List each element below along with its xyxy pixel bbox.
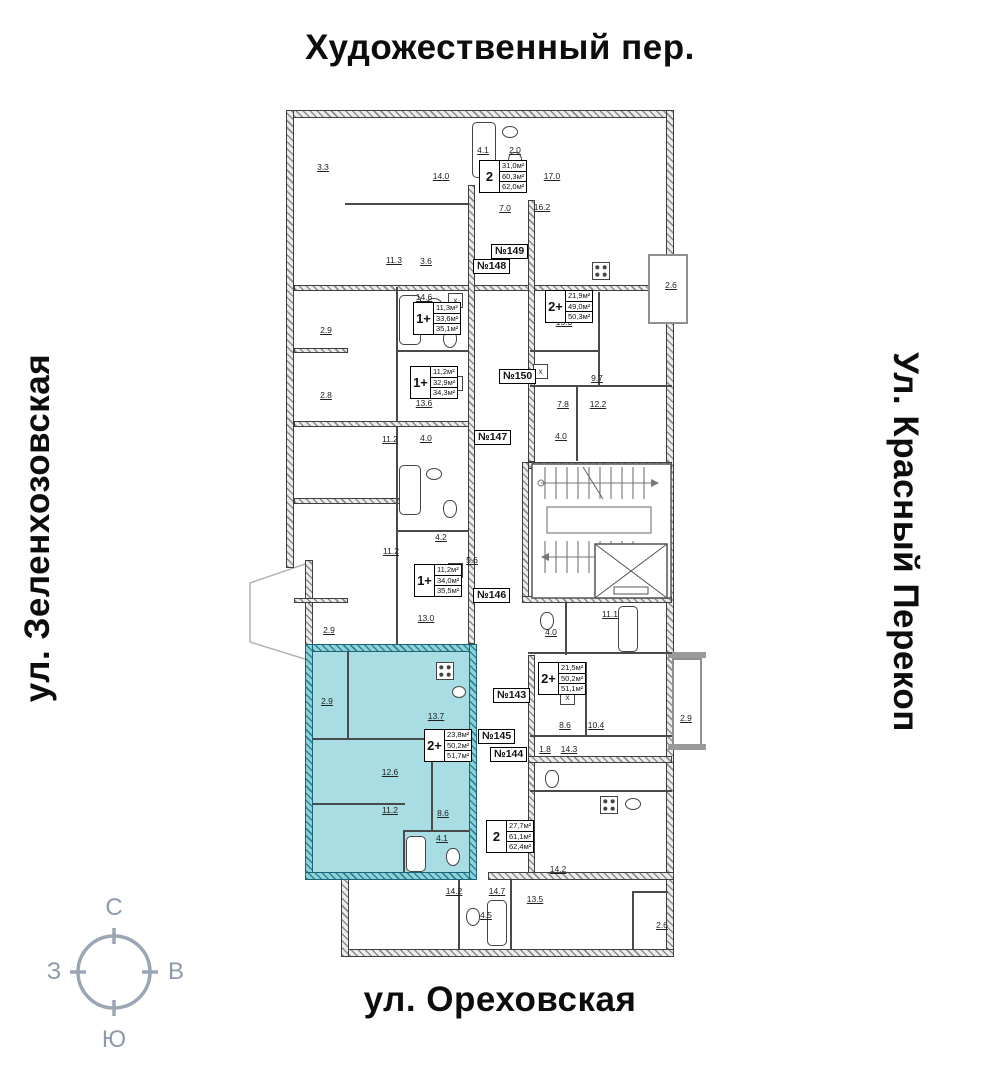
partition-wall [403, 830, 469, 832]
partition-wall [347, 652, 349, 740]
unit-type-label: 2 [480, 161, 500, 192]
unit-areas: 11,2м²32,9м²34,3м² [431, 367, 457, 398]
sink-icon [502, 126, 518, 138]
unit-areas: 31,0м²60,3м²62,0м² [500, 161, 526, 192]
unit-number-tag: №150 [499, 369, 536, 384]
unit-areas: 11,2м²34,0м²35,5м² [435, 565, 461, 596]
tub-icon [487, 900, 507, 946]
room-dimension-label: 2.6 [665, 280, 677, 290]
unit-number-tag: №144 [490, 747, 527, 762]
partition-wall [313, 738, 433, 740]
unit-number-tag: №145 [478, 729, 515, 744]
unit-stat-box[interactable]: 1+11,3м²33,6м²35,1м² [413, 302, 461, 335]
unit-area-value: 11,2м² [431, 367, 457, 377]
unit-stat-box[interactable]: 1+11,2м²34,0м²35,5м² [414, 564, 462, 597]
unit-stat-box[interactable]: 1+11,2м²32,9м²34,3м² [410, 366, 458, 399]
room-dimension-label: 3.3 [317, 162, 329, 172]
room-dimension-label: 11.2 [382, 805, 398, 815]
room-dimension-label: 4.0 [545, 627, 557, 637]
stove-icon [592, 262, 610, 280]
room-dimension-label: 4.1 [477, 145, 489, 155]
partition-wall [510, 880, 512, 949]
unit-areas: 11,3м²33,6м²35,1м² [434, 303, 460, 334]
tub-icon [399, 465, 421, 515]
room-dimension-label: 12.2 [590, 399, 607, 409]
unit-type-label: 2+ [546, 291, 566, 322]
toilet-icon [446, 848, 460, 866]
room-dimension-label: 2.9 [320, 325, 332, 335]
wall-segment [522, 462, 529, 603]
room-dimension-label: 13.6 [416, 398, 433, 408]
unit-area-value: 51,7м² [445, 751, 471, 761]
toilet-icon [545, 770, 559, 788]
tub-icon [406, 836, 426, 872]
unit-stat-box[interactable]: 227,7м²61,1м²62,4м² [486, 820, 534, 853]
room-dimension-label: 13.5 [527, 894, 544, 904]
unit-area-value: 49,0м² [566, 301, 592, 313]
room-dimension-label: 14.2 [446, 886, 463, 896]
unit-areas: 21,5м²50,2м²51,1м² [559, 663, 585, 694]
unit-type-label: 2+ [425, 730, 445, 761]
room-dimension-label: 9.7 [591, 373, 603, 383]
unit-number-tag: №146 [473, 588, 510, 603]
room-dimension-label: 14.6 [416, 292, 433, 302]
unit-stat-box[interactable]: 2+21,9м²49,0м²50,3м² [545, 290, 593, 323]
wall-segment [294, 348, 348, 353]
room-dimension-label: 11.2 [383, 546, 399, 556]
balcony-slab [668, 652, 706, 658]
room-dimension-label: 8.6 [559, 720, 571, 730]
wall-segment [305, 560, 313, 652]
partition-wall [530, 735, 672, 737]
unit-areas: 27,7м²61,1м²62,4м² [507, 821, 533, 852]
partition-wall [632, 891, 668, 893]
partition-wall [565, 603, 567, 655]
unit-area-value: 35,5м² [435, 586, 461, 596]
unit-stat-box-highlighted[interactable]: 2+23,8м²50,2м²51,7м² [424, 729, 472, 762]
room-dimension-label: 14.0 [433, 171, 450, 181]
room-dimension-label: 4.0 [420, 433, 432, 443]
unit-area-value: 11,3м² [434, 303, 460, 313]
balcony-outline [672, 658, 702, 748]
partition-wall [598, 292, 600, 385]
room-dimension-label: 14.2 [550, 864, 567, 874]
wall-segment [294, 598, 348, 603]
room-dimension-label: 14.3 [561, 744, 578, 754]
room-dimension-label: 10.4 [588, 720, 605, 730]
unit-area-value: 50,2м² [445, 740, 471, 752]
room-dimension-label: 2.8 [320, 390, 332, 400]
unit-type-label: 2 [487, 821, 507, 852]
tub-icon [618, 606, 638, 652]
highlight-wall-segment [469, 644, 477, 880]
room-dimension-label: 1.8 [539, 744, 551, 754]
wall-segment [488, 872, 674, 880]
unit-area-value: 51,1м² [559, 684, 585, 694]
room-dimension-label: 14.7 [489, 886, 506, 896]
room-dimension-label: 17.0 [544, 171, 561, 181]
sink-icon [625, 798, 641, 810]
unit-area-value: 50,3м² [566, 312, 592, 322]
partition-wall [528, 652, 672, 654]
unit-type-label: 1+ [415, 565, 435, 596]
wall-segment [294, 421, 474, 427]
partition-wall [530, 350, 598, 352]
unit-type-label: 2+ [539, 663, 559, 694]
unit-type-label: 1+ [411, 367, 431, 398]
unit-area-value: 35,1м² [434, 324, 460, 334]
wall-segment [286, 110, 294, 568]
unit-area-value: 27,7м² [507, 821, 533, 831]
partition-wall [576, 385, 578, 461]
unit-number-tag: №149 [491, 244, 528, 259]
room-dimension-label: 2.9 [323, 625, 335, 635]
unit-area-value: 33,6м² [434, 313, 460, 325]
unit-area-value: 61,1м² [507, 831, 533, 843]
toilet-icon [466, 908, 480, 926]
floorplan-page: { "streets": { "top": "Художественный пе… [0, 0, 1000, 1067]
unit-stat-box[interactable]: 231,0м²60,3м²62,0м² [479, 160, 527, 193]
partition-wall [396, 427, 398, 644]
partition-wall [396, 350, 468, 352]
unit-area-value: 23,8м² [445, 730, 471, 740]
highlight-wall-segment [305, 872, 477, 880]
unit-area-value: 60,3м² [500, 171, 526, 183]
partition-wall [530, 790, 672, 792]
room-dimension-label: 4.2 [435, 532, 447, 542]
unit-number-tag: №148 [473, 259, 510, 274]
wall-segment [294, 285, 672, 291]
terrace-outline-icon [244, 558, 314, 668]
room-dimension-label: 4.0 [555, 431, 567, 441]
wall-segment [468, 185, 475, 644]
compass-rose: С Ю З В [42, 880, 192, 1055]
unit-area-value: 62,0м² [500, 182, 526, 192]
unit-area-value: 50,2м² [559, 673, 585, 685]
unit-area-value: 62,4м² [507, 842, 533, 852]
room-dimension-label: 7.0 [499, 203, 511, 213]
elevator-icon [592, 541, 670, 601]
unit-area-value: 21,5м² [559, 663, 585, 673]
unit-area-value: 21,9м² [566, 291, 592, 301]
partition-wall [403, 830, 405, 872]
unit-areas: 21,9м²49,0м²50,3м² [566, 291, 592, 322]
room-dimension-label: 8.6 [437, 808, 449, 818]
sink-icon [452, 686, 466, 698]
room-dimension-label: 16.2 [534, 202, 551, 212]
room-dimension-label: 2.6 [656, 920, 668, 930]
balcony-slab [668, 744, 706, 750]
unit-number-tag: №143 [493, 688, 530, 703]
room-dimension-label: 13.0 [418, 613, 435, 623]
room-dimension-label: 2.9 [680, 713, 692, 723]
room-dimension-label: 12.6 [382, 767, 399, 777]
sink-icon [426, 468, 442, 480]
room-dimension-label: 7.8 [557, 399, 569, 409]
highlight-wall-segment [305, 644, 477, 652]
partition-wall [530, 385, 672, 387]
partition-wall [396, 530, 468, 532]
unit-area-value: 11,2м² [435, 565, 461, 575]
unit-areas: 23,8м²50,2м²51,7м² [445, 730, 471, 761]
stove-icon [600, 796, 618, 814]
room-dimension-label: 2.9 [321, 696, 333, 706]
room-dimension-label: 11.1 [602, 609, 618, 619]
unit-area-value: 32,9м² [431, 377, 457, 389]
stove-icon [436, 662, 454, 680]
highlight-wall-segment [305, 644, 313, 880]
room-dimension-label: 2.0 [509, 145, 521, 155]
room-dimension-label: 5.6 [466, 555, 478, 565]
room-dimension-label: 3.6 [420, 256, 432, 266]
room-dimension-label: 13.7 [428, 711, 445, 721]
room-dimension-label: 11.2 [382, 434, 398, 444]
wall-segment [341, 949, 674, 957]
unit-stat-box[interactable]: 2+21,5м²50,2м²51,1м² [538, 662, 586, 695]
partition-wall [396, 287, 398, 421]
room-dimension-label: 11.3 [386, 255, 402, 265]
wall-segment [286, 110, 674, 118]
wall-segment [294, 498, 404, 504]
unit-type-label: 1+ [414, 303, 434, 334]
unit-area-value: 31,0м² [500, 161, 526, 171]
wall-segment [528, 756, 672, 763]
partition-wall [345, 203, 468, 205]
unit-area-value: 34,3м² [431, 388, 457, 398]
room-dimension-label: 4.5 [480, 910, 492, 920]
compass-circle-icon [42, 880, 192, 1055]
wall-segment [341, 872, 349, 957]
wall-segment [528, 200, 535, 462]
unit-area-value: 34,0м² [435, 575, 461, 587]
toilet-icon [443, 500, 457, 518]
unit-number-tag: №147 [474, 430, 511, 445]
partition-wall [632, 891, 634, 949]
room-dimension-label: 4.1 [436, 833, 448, 843]
